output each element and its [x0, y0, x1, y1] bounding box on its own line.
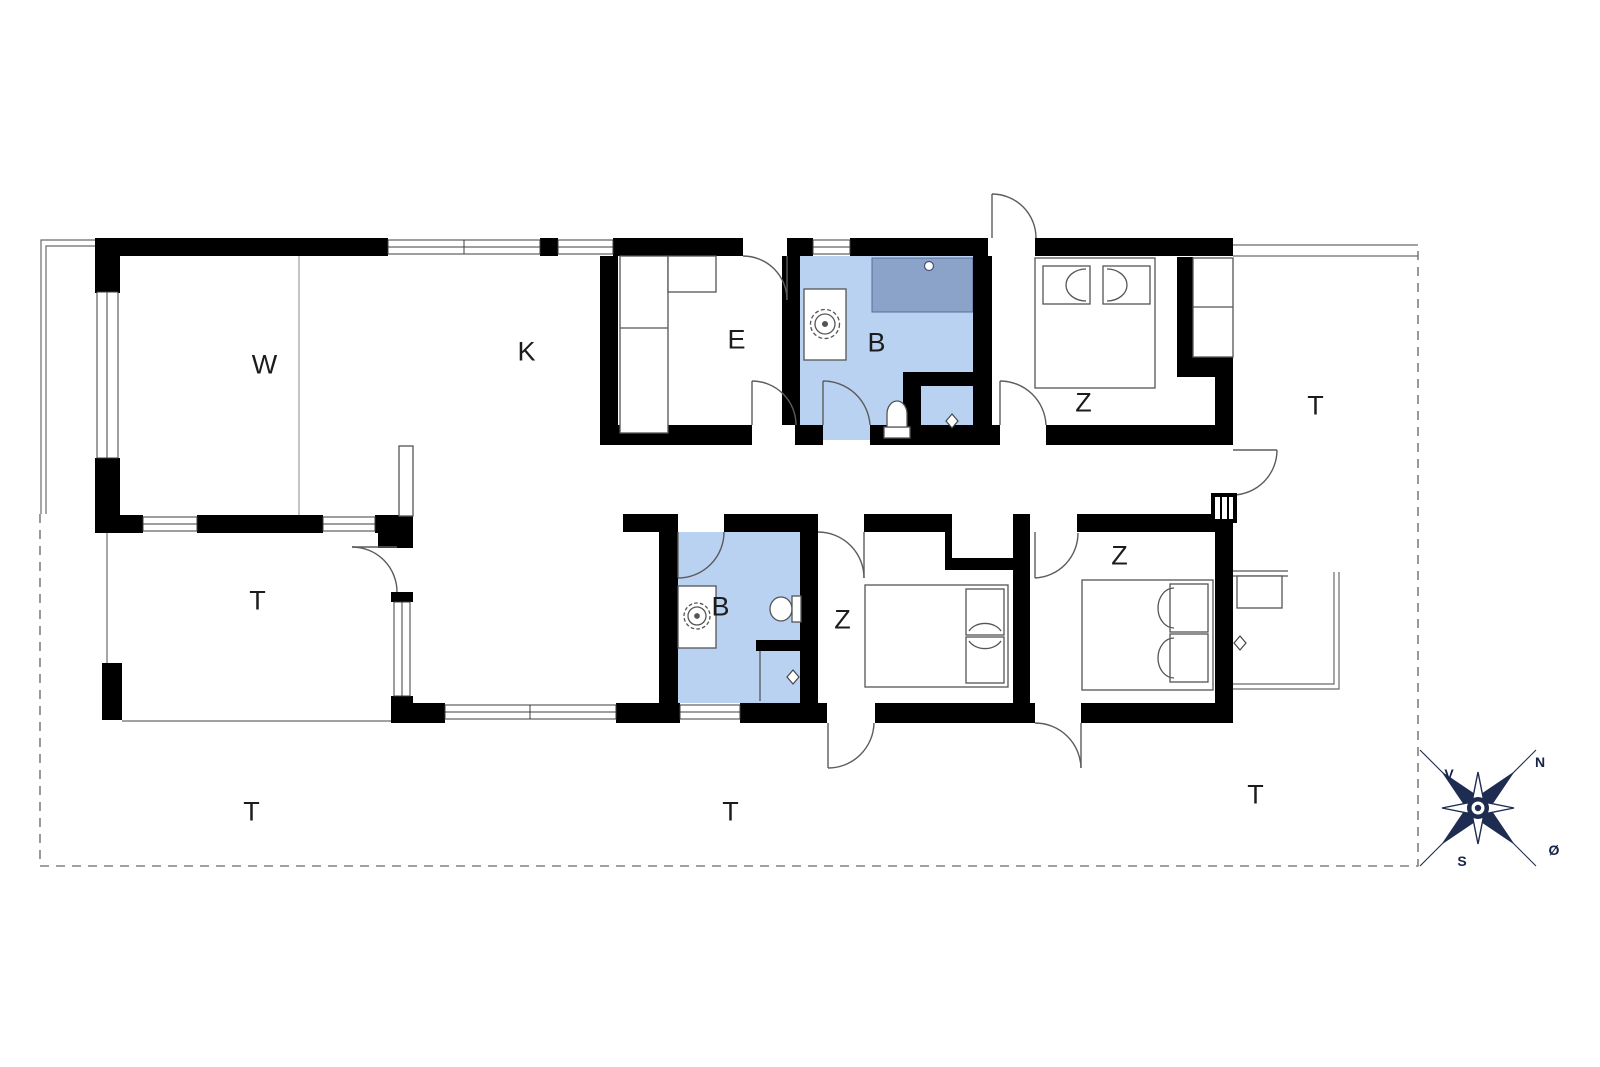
compass-north-label: N [1535, 754, 1545, 770]
entry-closet [620, 256, 716, 433]
room-label-terrace-inner: T [249, 586, 267, 617]
room-label-bath-top: B [867, 328, 886, 359]
drain-icon [1234, 636, 1246, 650]
room-label-bath-bottom: B [711, 592, 730, 623]
compass-west-label: V [1444, 766, 1453, 782]
sink-top [804, 289, 846, 360]
room-label-living: W [252, 350, 278, 381]
room-label-terrace-br: T [1247, 780, 1265, 811]
sink-bottom [678, 586, 716, 648]
double-bed-middle [865, 585, 1008, 687]
vent-chimney [1211, 493, 1237, 523]
room-label-bed-right: Z [1111, 541, 1129, 572]
room-label-bed-top: Z [1075, 388, 1093, 419]
double-bed-right [1082, 580, 1213, 690]
toilet-bottom [770, 596, 801, 622]
room-label-entry: E [727, 325, 746, 356]
room-label-kitchen: K [517, 337, 536, 368]
compass-rose-icon [1420, 750, 1536, 866]
double-bed-top [1035, 258, 1155, 388]
room-label-bed-middle: Z [834, 605, 852, 636]
compass-south-label: S [1457, 853, 1466, 869]
floor-plan: W K E B Z T T B Z Z T T T N V S Ø [0, 0, 1600, 1067]
wardrobe-nook [1193, 258, 1233, 357]
outdoor-table [1233, 571, 1288, 608]
room-label-terrace-right: T [1307, 391, 1325, 422]
room-label-terrace-bm: T [722, 797, 740, 828]
column-stub [399, 446, 413, 516]
shower-mat [872, 258, 973, 312]
shower-drain-icon [925, 262, 934, 271]
compass-east-label: Ø [1549, 842, 1560, 858]
floor-plan-drawing [0, 0, 1600, 1067]
room-label-terrace-bl: T [243, 797, 261, 828]
